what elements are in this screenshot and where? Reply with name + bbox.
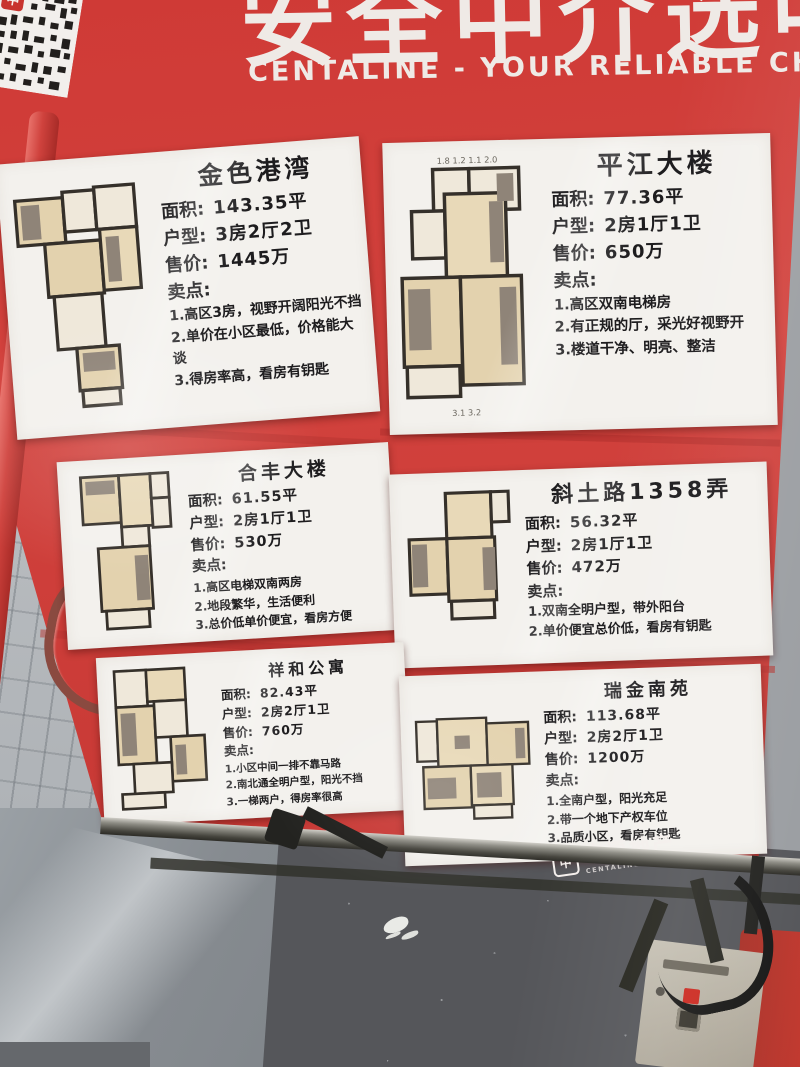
price-label: 售价: [526, 557, 563, 581]
listing-card-xianghegongyu: 祥和公寓 面积:82.43平 户型:2房2厅1卫 售价:760万 卖点: 1.小… [96, 642, 412, 826]
price-label: 售价: [222, 723, 253, 743]
layout-label: 户型: [552, 213, 596, 241]
floor-plan [104, 660, 220, 819]
floor-plan [65, 463, 189, 644]
price-label: 售价: [164, 249, 209, 279]
listing-title: 平江大楼 [596, 142, 717, 182]
floor-plan [397, 478, 523, 662]
listing-title: 祥和公寓 [267, 653, 348, 681]
area-label: 面积: [525, 512, 562, 536]
price-label: 售价: [552, 240, 596, 268]
area-label: 面积: [221, 685, 252, 705]
layout-value: 2房1厅1卫 [604, 210, 702, 240]
area-value: 113.68平 [586, 704, 662, 728]
listing-title: 斜土路1358弄 [551, 471, 733, 509]
price-value: 530万 [234, 530, 284, 555]
area-label: 面积: [187, 490, 223, 514]
price-value: 650万 [605, 238, 665, 267]
listing-card-jinsegangwan: 金色港湾 面积:143.35平 户型:3房2厅2卫 售价:1445万 卖点: 1… [0, 136, 380, 440]
listing-card-xietulu: 斜土路1358弄 面积:56.32平 户型:2房1厅1卫 售价:472万 卖点:… [389, 461, 774, 668]
area-label: 面积: [160, 196, 205, 226]
floor-tile-corner [0, 1042, 150, 1067]
listing-card-ruijinnanyuan: 瑞金南苑 面积:113.68平 户型:2房2厅1卫 售价:1200万 卖点: 1… [399, 664, 767, 867]
floor-plan: 1.8 1.2 1.1 2.0 3.1 [390, 147, 550, 429]
area-label: 面积: [543, 707, 577, 729]
area-value: 77.36平 [603, 183, 685, 212]
floor-plan [4, 161, 170, 434]
price-value: 760万 [261, 720, 305, 741]
listing-title: 瑞金南苑 [603, 674, 692, 703]
listing-card-pingjiangdalou: 1.8 1.2 1.1 2.0 3.1 [382, 133, 778, 435]
price-value: 1200万 [587, 747, 646, 770]
area-value: 56.32平 [570, 509, 639, 534]
layout-label: 户型: [544, 728, 578, 750]
layout-label: 户型: [162, 222, 207, 252]
plan-dimensions-top: 1.8 1.2 1.1 2.0 [437, 154, 498, 166]
listing-card-hefengdalou: 合丰大楼 面积:61.55平 户型:2房1厅1卫 售价:530万 卖点: 1.高… [57, 442, 400, 650]
price-label: 售价: [190, 534, 226, 558]
layout-label: 户型: [189, 512, 225, 536]
listing-title: 金色港湾 [196, 148, 314, 193]
layout-label: 户型: [525, 534, 562, 558]
layout-value: 2房1厅1卫 [570, 531, 653, 556]
layout-label: 户型: [221, 704, 252, 724]
plan-dimensions-bottom: 3.1 3.2 [452, 407, 481, 418]
selling-point: 3.楼道干净、明亮、整洁 [555, 334, 768, 362]
price-label: 售价: [544, 749, 578, 771]
layout-value: 2房2厅1卫 [586, 725, 664, 749]
price-value: 472万 [571, 555, 622, 579]
floor-plan [407, 680, 541, 860]
area-label: 面积: [551, 186, 595, 214]
street-photo-scene: 安全中介选中 CENTALINE - YOUR RELIABLE CH 中 [0, 0, 800, 1067]
listing-title: 合丰大楼 [237, 454, 330, 487]
